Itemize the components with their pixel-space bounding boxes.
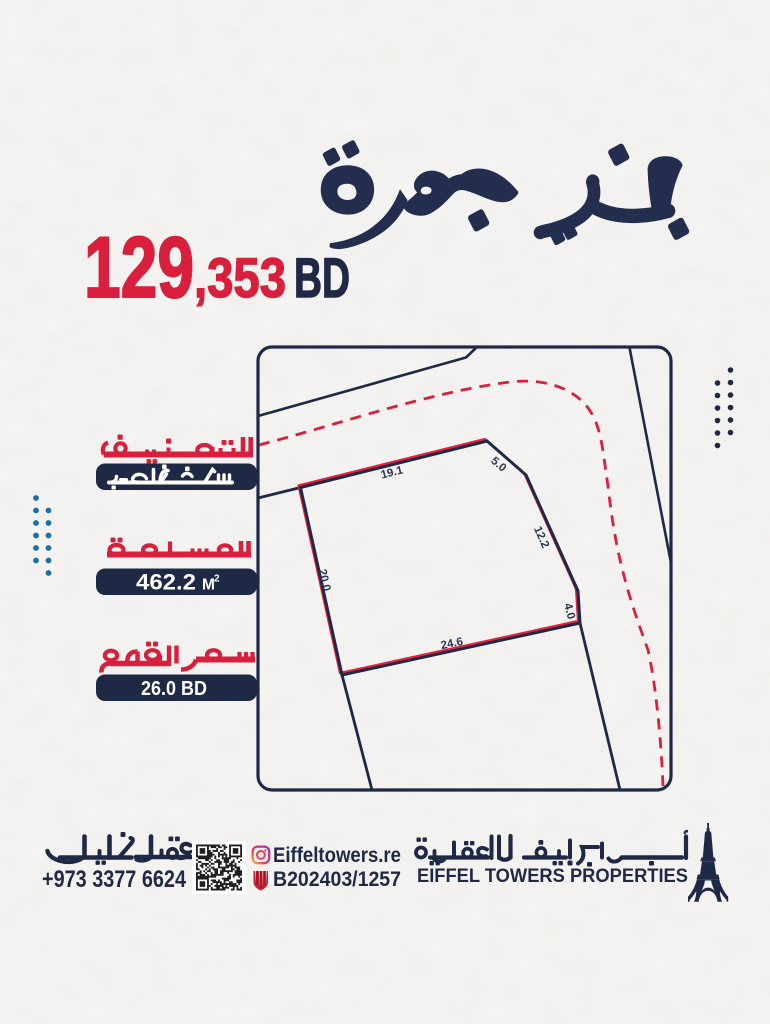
svg-text:2: 2 [214, 574, 220, 585]
svg-text:B202403/1257: B202403/1257 [273, 868, 401, 891]
svg-text:+973 3377 6624: +973 3377 6624 [42, 866, 187, 893]
svg-text:M: M [202, 577, 215, 594]
svg-text:EIFFEL TOWERS PROPERTIES: EIFFEL TOWERS PROPERTIES [417, 865, 688, 887]
svg-text:Eiffeltowers.re: Eiffeltowers.re [273, 844, 401, 867]
svg-text:129: 129 [84, 220, 194, 316]
svg-text:462.2: 462.2 [136, 570, 196, 595]
svg-text:BD: BD [294, 246, 350, 309]
svg-text:,353: ,353 [194, 246, 286, 309]
svg-text:26.0 BD: 26.0 BD [141, 678, 207, 700]
